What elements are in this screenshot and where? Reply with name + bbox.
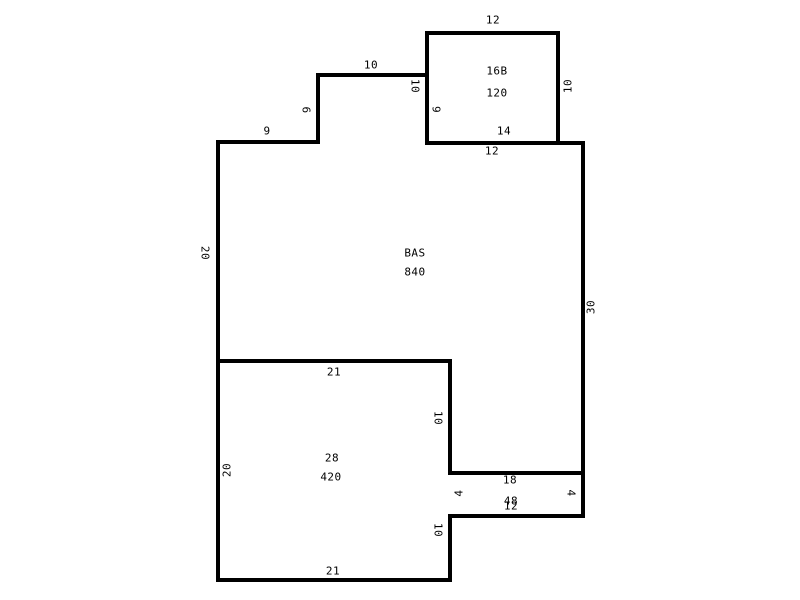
dim-strip-left: 4 — [454, 489, 465, 496]
dim-bas-left: 20 — [200, 246, 211, 260]
dim-16b-top: 12 — [486, 15, 500, 26]
wall-room28-top — [216, 359, 452, 363]
room-16b-label: 16B — [486, 66, 507, 77]
dim-strip-bottom: 12 — [504, 501, 518, 512]
dim-room28-right-lower: 10 — [433, 523, 444, 537]
dim-room28-top: 21 — [327, 367, 341, 378]
dim-16b-bottom: 12 — [485, 146, 499, 157]
room-28-label: 28 — [325, 453, 339, 464]
room-18-label: 18 — [503, 475, 517, 486]
wall-16b-right — [556, 31, 560, 145]
dim-step-left: 6 — [301, 106, 312, 113]
wall-bas-top-left — [216, 140, 320, 144]
wall-16b-top — [425, 31, 560, 35]
dim-room28-left: 20 — [222, 463, 233, 477]
dim-16b-left-lower: 6 — [432, 105, 443, 112]
wall-room28-right-up — [448, 359, 452, 475]
dim-16b-right: 10 — [563, 79, 574, 93]
wall-room28-bottom — [216, 578, 452, 582]
room-bas-label: BAS — [404, 248, 425, 259]
room-bas-area: 840 — [404, 267, 425, 278]
dim-room28-right-upper: 10 — [433, 411, 444, 425]
wall-step-top — [316, 73, 429, 77]
dim-bas-top-right-seg: 14 — [497, 126, 511, 137]
wall-16b-left — [425, 31, 429, 145]
dim-16b-left: 10 — [410, 79, 421, 93]
floorplan-sketch: 1216B120101061412106920BAS84030211028204… — [0, 0, 800, 600]
wall-right-edge — [581, 141, 585, 518]
dim-room28-bottom: 21 — [326, 566, 340, 577]
dim-strip-right: 4 — [566, 489, 577, 496]
room-28-area: 420 — [320, 472, 341, 483]
dim-bas-right: 30 — [586, 300, 597, 314]
dim-bas-top-left-seg: 9 — [263, 126, 270, 137]
wall-strip-bottom — [448, 514, 585, 518]
room-16b-area: 120 — [486, 88, 507, 99]
wall-room28-right-low — [448, 514, 452, 582]
dim-step-top: 10 — [364, 60, 378, 71]
wall-step-left — [316, 73, 320, 144]
wall-bas-top-right — [425, 141, 585, 145]
